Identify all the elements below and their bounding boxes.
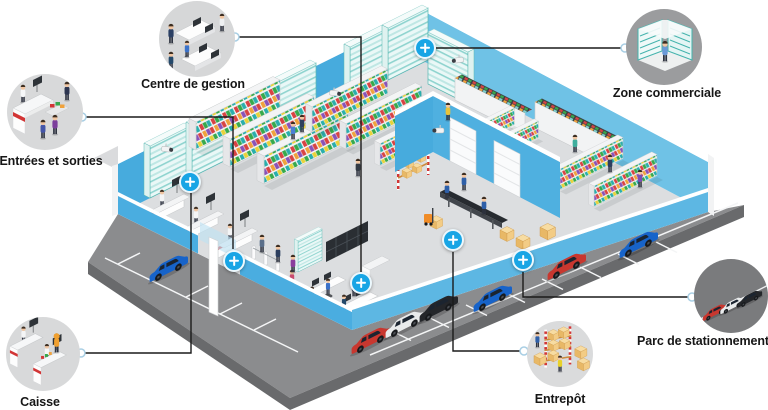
- callout-bubble-centre-de-gestion: [159, 1, 235, 77]
- callout-label-entrepot: Entrepôt: [485, 392, 635, 406]
- callout-label-caisse: Caisse: [0, 395, 115, 409]
- hotspot-caisse plus-icon[interactable]: [179, 171, 201, 193]
- callout-bubble-parc-de-stationnement: [694, 259, 768, 333]
- callout-bubble-caisse: [6, 317, 80, 391]
- hotspot-centre-de-gestion plus-icon[interactable]: [350, 272, 372, 294]
- callout-bubble-entrees-et-sorties: [7, 74, 83, 150]
- callout-label-entrees-et-sorties: Entrées et sorties: [0, 154, 126, 168]
- callout-label-zone-commerciale: Zone commerciale: [592, 86, 742, 100]
- callout-label-parc-de-stationnement: Parc de stationnement: [628, 334, 768, 348]
- callout-bubble-zone-commerciale: [626, 9, 702, 85]
- mini-parking-illustration: [694, 259, 768, 333]
- callout-label-centre-de-gestion: Centre de gestion: [118, 77, 268, 91]
- callout-bubble-entrepot: [527, 321, 593, 387]
- hot spot-entrees-et-sorties plus-icon[interactable]: [223, 250, 245, 272]
- hotspot-zone-commerciale plus-icon[interactable]: [414, 37, 436, 59]
- supermarket-isometric-map: Centre de gestion Entrées et sorties Cai…: [0, 0, 768, 410]
- mini-checkout-illustration: [6, 317, 80, 391]
- mini-office-illustration: [159, 1, 235, 77]
- mini-warehouse-illustration: [527, 321, 593, 387]
- mini-entrance-illustration: [7, 74, 83, 150]
- hotspot-parc-de-stationnement plus-icon[interactable]: [512, 249, 534, 271]
- hotspot-entrepot plus-icon[interactable]: [442, 229, 464, 251]
- mini-shop-shelves-illustration: [626, 9, 702, 85]
